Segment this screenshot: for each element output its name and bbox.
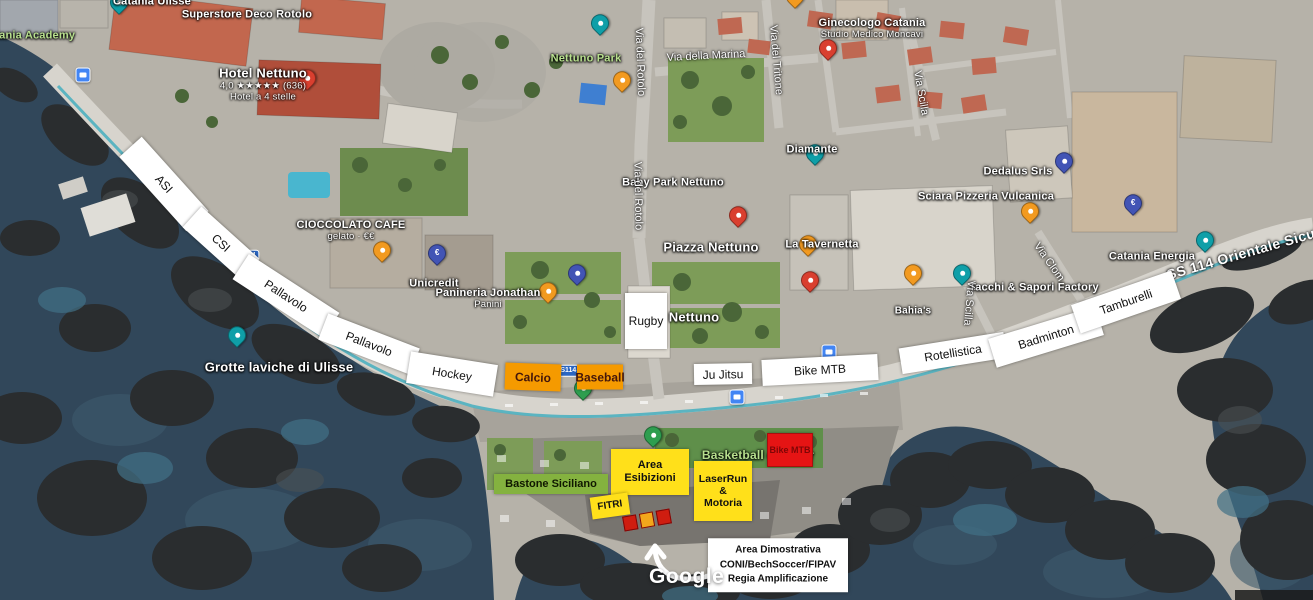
sport-label-ju-jitsu: Ju Jitsu (694, 363, 752, 385)
note-line: CONI/BechSoccer/FIPAV (712, 558, 844, 573)
satellite-map: €€ Catania UlisseCatania AcademySupersto… (0, 0, 1313, 600)
event-box-line: LaserRun (699, 473, 747, 485)
sport-label-text: CSI (209, 231, 233, 255)
event-box-line: Bike MTB (769, 445, 810, 455)
sport-label-text: Pallavolo (262, 277, 310, 315)
sport-label-text: Tamburelli (1098, 286, 1154, 317)
sport-label-pallavolo: Pallavolo (318, 313, 420, 374)
event-box-line: Area Esibizioni (611, 459, 689, 484)
demo-marker (622, 514, 638, 531)
note-line: Area Dimostrativa (712, 543, 844, 558)
sport-label-text: ASI (152, 172, 175, 196)
sport-label-text: Pallavolo (344, 329, 394, 360)
sport-label-text: Baseball (575, 370, 624, 384)
sport-label-text: Bike MTB (794, 362, 847, 379)
google-watermark: Google (649, 565, 724, 589)
sport-label-text: Ju Jitsu (703, 367, 744, 382)
sport-label-tamburelli: Tamburelli (1071, 271, 1181, 334)
sport-label-rugby: Rugby (625, 293, 667, 349)
sport-label-text: Rotellistica (923, 342, 983, 365)
event-area-esibizioni: Area Esibizioni (611, 449, 689, 495)
event-laserrun-motoria: LaserRun&Motoria (694, 461, 752, 521)
sport-label-bike-mtb: Bike MTB (761, 354, 878, 386)
sport-label-text: Rugby (629, 314, 664, 328)
event-annotations-layer: ASICSIPallavoloPallavoloHockeyCalcioBase… (0, 0, 1313, 600)
event-box-line: & (719, 485, 727, 497)
sport-label-text: Badminton (1017, 322, 1076, 352)
sport-label-text: Calcio (515, 369, 551, 384)
sport-label-calcio: Calcio (505, 363, 562, 392)
demo-marker (639, 511, 655, 528)
event-box-line: Bastone Siciliano (505, 478, 597, 491)
event-bike-mtb: Bike MTB (767, 433, 813, 467)
event-box-line: FITRI (597, 499, 623, 514)
sport-label-baseball: Baseball (577, 365, 623, 390)
demo-marker (656, 508, 672, 525)
demo-area-note: Area DimostrativaCONI/BechSoccer/FIPAVRe… (708, 538, 848, 592)
note-line: Regia Amplificazione (712, 572, 844, 587)
event-bastone-siciliano: Bastone Siciliano (494, 474, 608, 494)
sport-label-text: Hockey (431, 364, 473, 384)
sport-label-hockey: Hockey (406, 351, 498, 396)
event-box-line: Motoria (704, 497, 742, 509)
